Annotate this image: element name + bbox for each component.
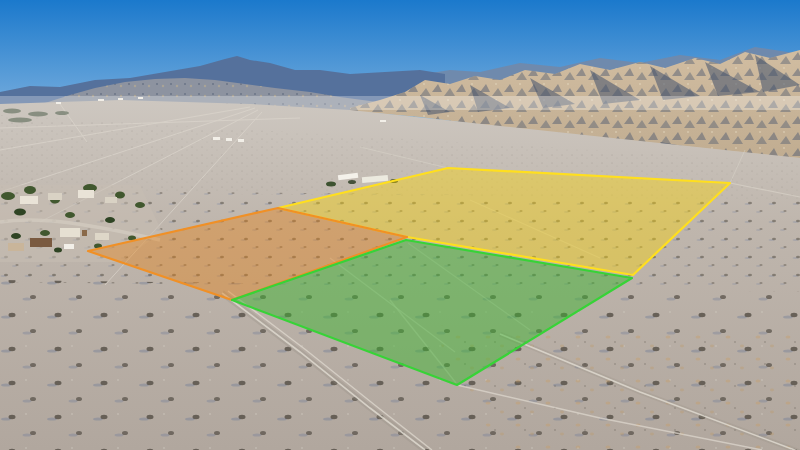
aerial-photo <box>0 0 800 450</box>
aerial-photo-canvas <box>0 0 800 450</box>
